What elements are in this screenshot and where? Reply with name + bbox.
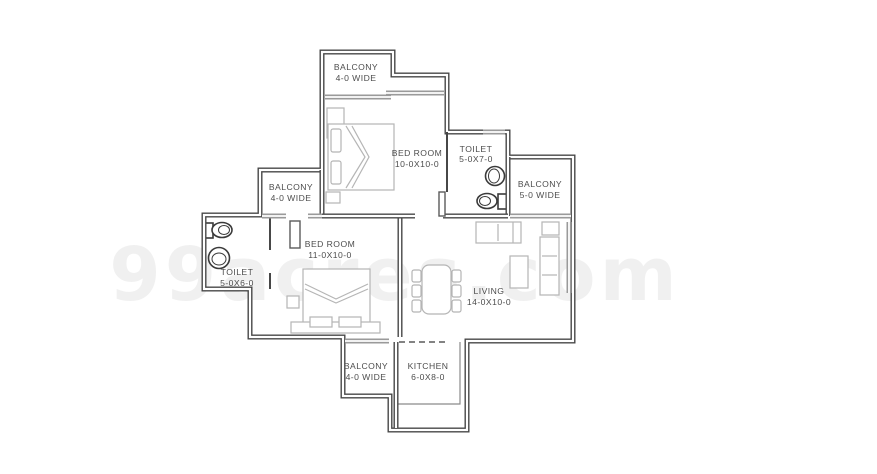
room-label: TOILET [221, 267, 254, 277]
room-balcony-bottom: BALCONY 4-0 WIDE [344, 361, 388, 382]
room-balcony-top: BALCONY 4-0 WIDE [334, 62, 378, 83]
floor-plan-page: 99acres.com [0, 0, 877, 474]
toilet-fixtures-icon [477, 167, 507, 210]
room-label: BALCONY [334, 62, 378, 72]
room-label: TOILET [460, 144, 493, 154]
room-kitchen: KITCHEN 6-0X8-0 [408, 361, 449, 382]
room-bedroom-1: BED ROOM 10-0X10-0 [392, 148, 442, 169]
bedroom-1-door-leaf [439, 192, 445, 216]
room-size: 10-0X10-0 [395, 159, 439, 169]
room-size: 5-0X6-0 [220, 278, 254, 288]
room-toilet-2: TOILET 5-0X6-0 [220, 267, 254, 288]
room-size: 6-0X8-0 [411, 372, 445, 382]
room-size: 14-0X10-0 [467, 297, 511, 307]
bed-icon [326, 108, 394, 203]
room-size: 5-0X7-0 [459, 154, 493, 164]
room-label: BED ROOM [392, 148, 442, 158]
room-bedroom-2: BED ROOM 11-0X10-0 [305, 239, 355, 260]
room-size: 4-0 WIDE [271, 193, 312, 203]
room-label: BED ROOM [305, 239, 355, 249]
floor-plan: 99acres.com [0, 0, 877, 474]
room-label: LIVING [474, 286, 505, 296]
watermark: 99acres.com [109, 232, 680, 318]
room-label: BALCONY [518, 179, 562, 189]
room-label: BALCONY [269, 182, 313, 192]
dining-table-icon [412, 265, 461, 314]
room-balcony-right: BALCONY 5-0 WIDE [518, 179, 562, 200]
room-size: 4-0 WIDE [346, 372, 387, 382]
room-balcony-left: BALCONY 4-0 WIDE [269, 182, 313, 203]
coffee-table-icon [510, 256, 528, 288]
room-toilet-1: TOILET 5-0X7-0 [459, 144, 493, 164]
room-label: BALCONY [344, 361, 388, 371]
room-size: 4-0 WIDE [336, 73, 377, 83]
room-size: 11-0X10-0 [308, 250, 352, 260]
room-size: 5-0 WIDE [520, 190, 561, 200]
room-label: KITCHEN [408, 361, 449, 371]
bedroom-2-door-leaf [290, 221, 300, 248]
